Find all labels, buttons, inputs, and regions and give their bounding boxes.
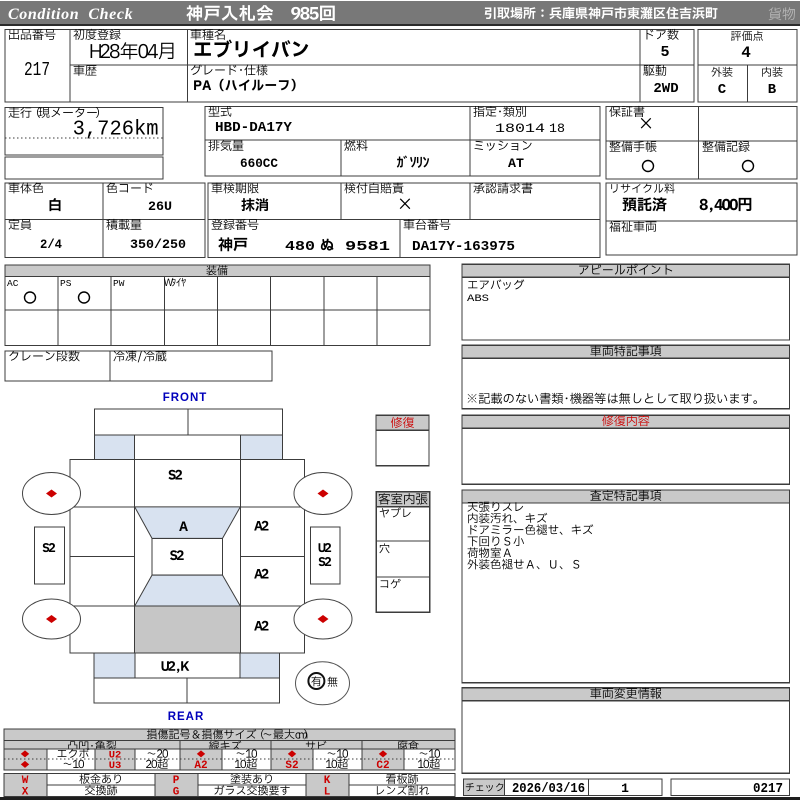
svg-text:480: 480	[285, 239, 315, 255]
svg-text:X: X	[22, 787, 29, 799]
svg-text:5: 5	[660, 44, 669, 61]
svg-text:K: K	[324, 775, 331, 787]
svg-text:Condition Check: Condition Check	[8, 6, 133, 23]
svg-text:ABS: ABS	[467, 293, 489, 305]
svg-text:AC: AC	[7, 278, 19, 289]
svg-text:U3: U3	[109, 760, 122, 772]
svg-text:REAR: REAR	[168, 711, 205, 723]
svg-text:W: W	[22, 775, 29, 787]
svg-text:B: B	[768, 82, 777, 98]
svg-text:3,726km: 3,726km	[73, 119, 159, 142]
svg-text:AT: AT	[508, 156, 524, 171]
svg-text:L: L	[324, 787, 331, 799]
svg-text:4: 4	[741, 44, 751, 62]
svg-text:2WD: 2WD	[653, 81, 678, 97]
svg-text:2/4: 2/4	[40, 237, 62, 252]
svg-text:350/250: 350/250	[130, 237, 186, 252]
svg-text:26U: 26U	[148, 199, 172, 214]
svg-text:PS: PS	[60, 278, 72, 289]
svg-text:217: 217	[24, 59, 50, 81]
svg-text:P: P	[173, 775, 180, 787]
svg-text:PW: PW	[113, 278, 125, 289]
svg-text:660CC: 660CC	[240, 156, 278, 171]
svg-text:A2: A2	[194, 760, 207, 772]
svg-text:S2: S2	[285, 760, 298, 772]
svg-text:C2: C2	[376, 760, 389, 772]
svg-text:18: 18	[549, 121, 565, 136]
svg-text:18014: 18014	[495, 121, 545, 136]
svg-text:0217: 0217	[753, 781, 783, 797]
svg-text:G: G	[173, 787, 180, 799]
svg-text:2026/03/16: 2026/03/16	[512, 781, 585, 797]
svg-text:HBD-DA17Y: HBD-DA17Y	[215, 120, 293, 136]
svg-text:C: C	[718, 82, 727, 98]
svg-text:DA17Y-163975: DA17Y-163975	[412, 239, 515, 255]
svg-text:1: 1	[621, 781, 629, 796]
svg-text:9581: 9581	[345, 239, 390, 255]
svg-text:FRONT: FRONT	[163, 392, 208, 404]
